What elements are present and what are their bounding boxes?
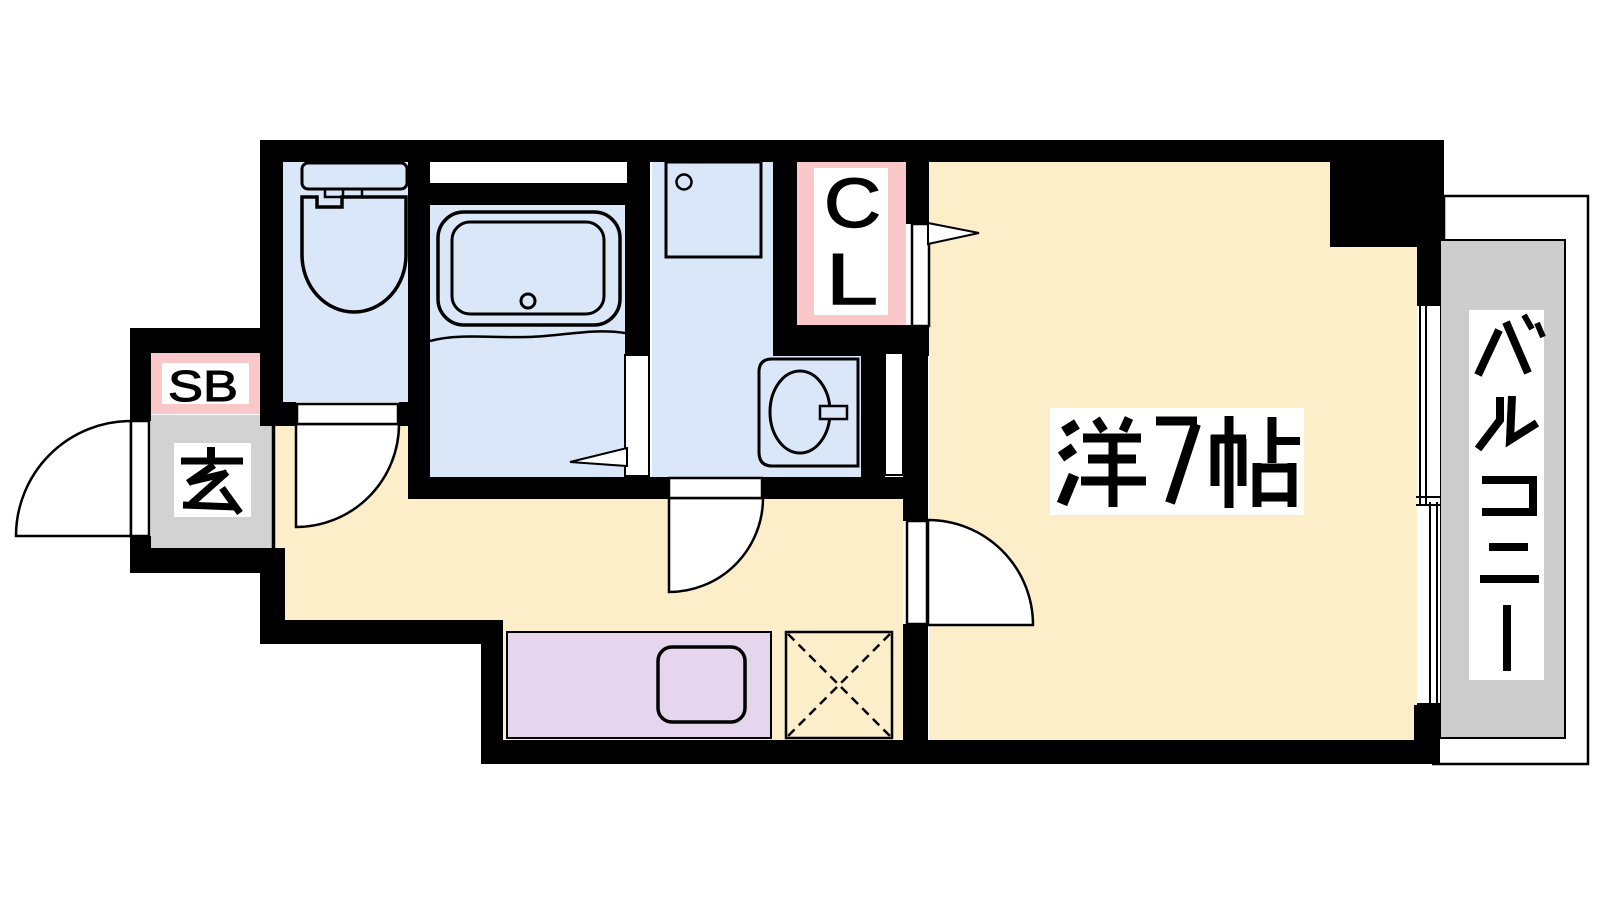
svg-text:C: C <box>824 164 881 242</box>
svg-text:SB: SB <box>168 362 238 411</box>
svg-text:L: L <box>826 240 878 320</box>
